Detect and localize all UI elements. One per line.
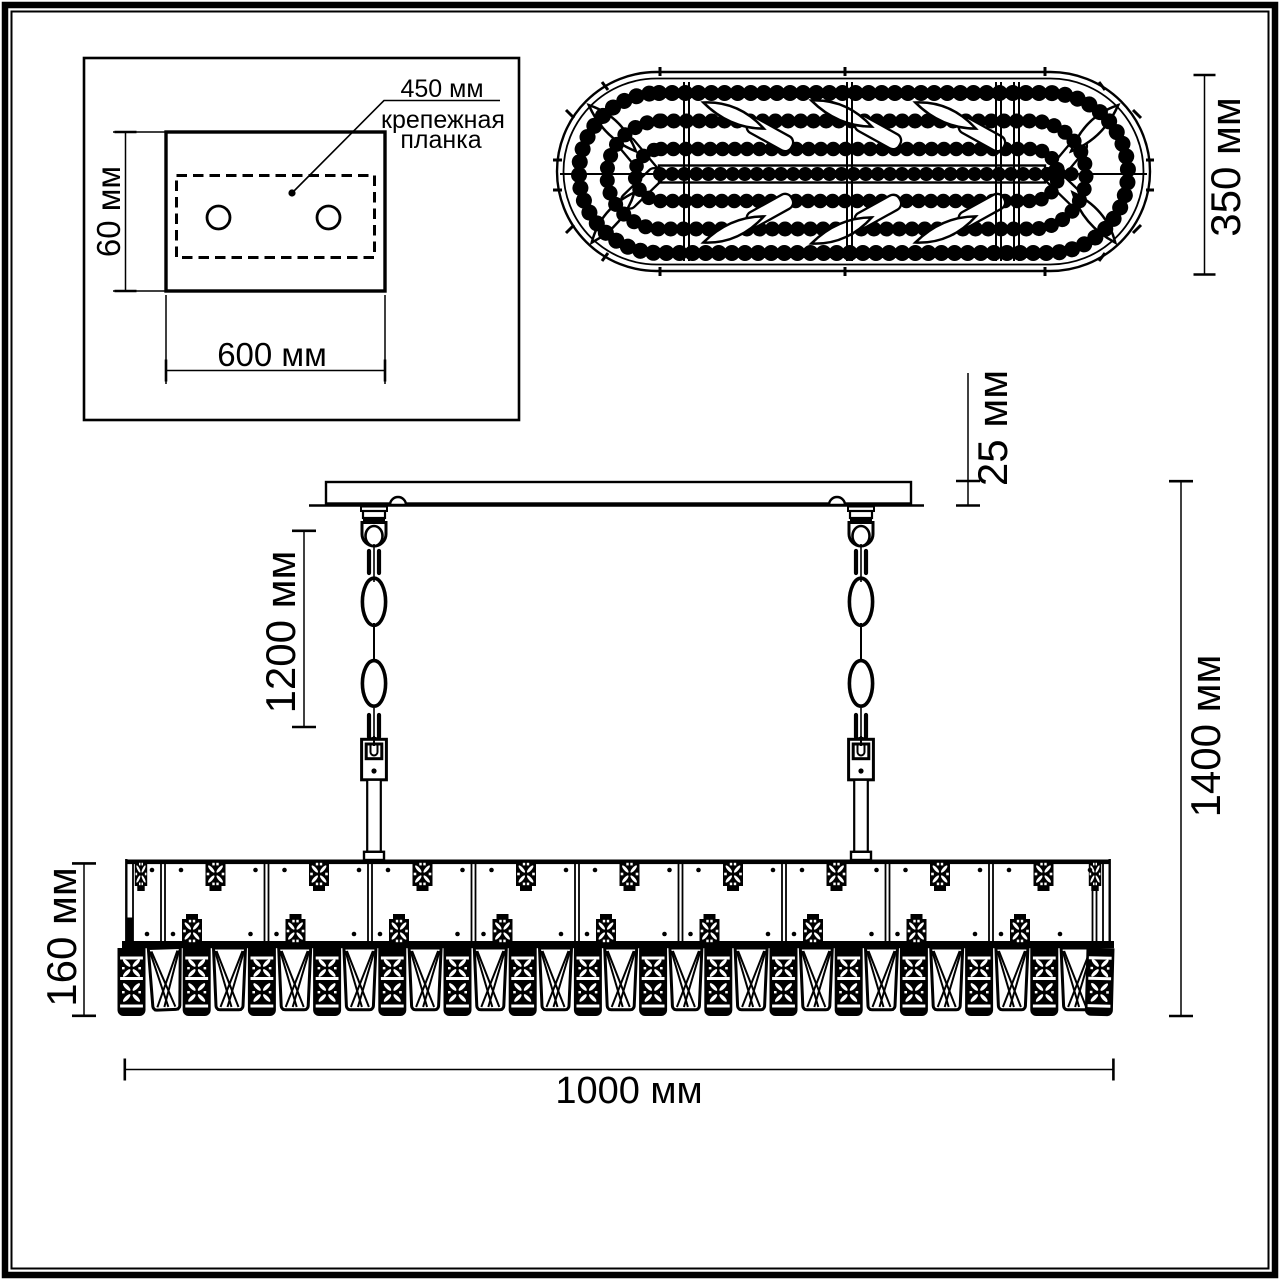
svg-text:60 мм: 60 мм <box>90 166 127 257</box>
svg-text:25 мм: 25 мм <box>969 370 1016 486</box>
svg-text:1400 мм: 1400 мм <box>1182 655 1229 818</box>
svg-text:планка: планка <box>400 126 481 154</box>
svg-text:160 мм: 160 мм <box>38 867 85 1007</box>
svg-text:350 мм: 350 мм <box>1202 97 1249 237</box>
svg-text:1200 мм: 1200 мм <box>257 551 304 714</box>
svg-text:1000 мм: 1000 мм <box>555 1070 702 1112</box>
svg-text:600 мм: 600 мм <box>217 336 327 373</box>
svg-text:450 мм: 450 мм <box>400 75 483 103</box>
